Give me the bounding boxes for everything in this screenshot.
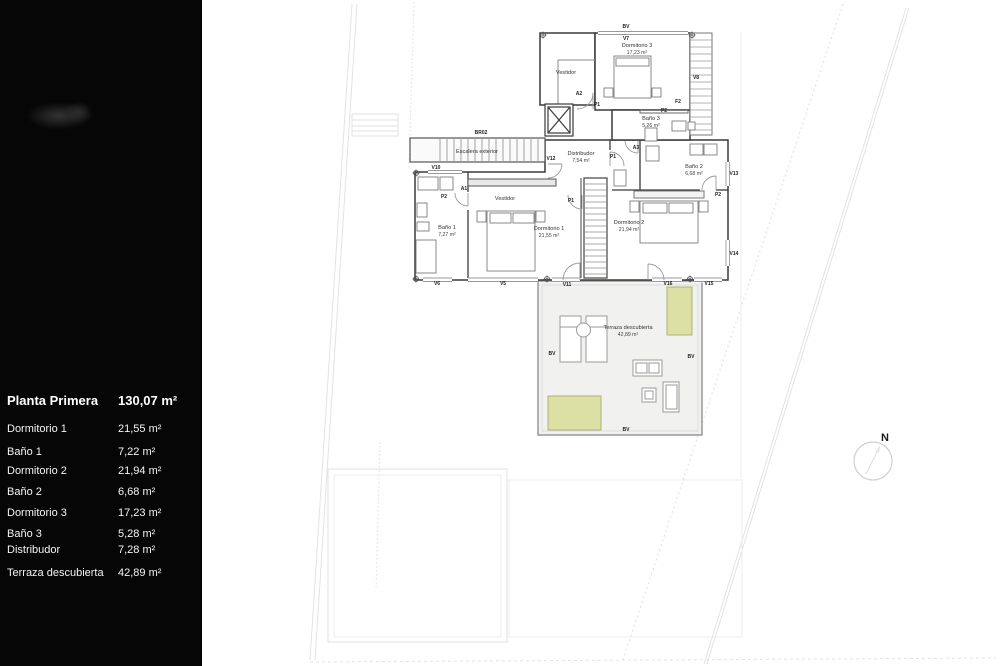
tag-label: P2 [715, 192, 721, 198]
room-name: Distribudor [7, 544, 60, 556]
tag-label: V7 [623, 36, 629, 42]
area-row: Dormitorio 2 21,94 m² [7, 465, 196, 478]
tag-label: BV [688, 354, 696, 360]
room-area: 21,55 m² [118, 423, 161, 436]
room-label-dormitorio-2: Dormitorio 2 [614, 220, 644, 226]
plan-title-row: Planta Primera 130,07 m² [7, 393, 196, 408]
room-label-vestidor-3: Vestidor [556, 70, 576, 76]
tag-label: V10 [432, 165, 441, 171]
tag-label: BV [623, 24, 631, 30]
area-row: Dormitorio 3 17,23 m² [7, 507, 196, 520]
tag-label: V12 [547, 156, 556, 162]
room-area: 17,23 m² [118, 507, 161, 520]
tag-label: BV [623, 427, 631, 433]
room-label-bano-2: Baño 2 [685, 164, 703, 170]
room-area-dormitorio-3: 17,23 m² [627, 50, 648, 56]
interior-stair [581, 178, 607, 278]
room-area-bano-3: 5,26 m² [642, 123, 660, 129]
room-area: 5,28 m² [118, 528, 155, 541]
room-name: Dormitorio 2 [7, 465, 67, 477]
area-row: Baño 1 7,22 m² [7, 446, 196, 459]
room-area-dormitorio-1: 21,55 m² [539, 233, 560, 239]
room-name: Terraza descubierta [7, 567, 104, 579]
tag-label: A3 [633, 145, 640, 151]
room-name: Baño 1 [7, 446, 42, 458]
terrace [538, 281, 702, 435]
tag-label: V5 [500, 281, 506, 287]
wardrobe-band [468, 179, 556, 186]
tag-label: BR02 [475, 130, 488, 136]
wardrobe-band [634, 191, 704, 198]
room-name: Baño 3 [7, 528, 42, 540]
room-area: 7,28 m² [118, 544, 155, 557]
area-row: Terraza descubierta 42,89 m² [7, 567, 196, 580]
tag-label: V16 [664, 281, 673, 287]
room-label-dormitorio-3: Dormitorio 3 [622, 43, 652, 49]
room-name: Baño 2 [7, 486, 42, 498]
room-area-dormitorio-2: 21,94 m² [619, 227, 640, 233]
sidebar: Planta Primera 130,07 m² Dormitorio 1 21… [0, 0, 202, 666]
page-title: Planta Primera [7, 393, 98, 408]
total-area-value: 130,07 m² [118, 393, 177, 408]
tag-label: V15 [705, 281, 714, 287]
room-area-terraza: 42,89 m² [618, 332, 639, 338]
planter [548, 396, 601, 430]
tag-label: V11 [563, 282, 572, 288]
room-area-distribudor: 7,54 m² [572, 158, 590, 164]
tag-label: BV [549, 351, 557, 357]
tag-label: V13 [730, 171, 739, 177]
room-label-vestidor-1: Vestidor [495, 196, 515, 202]
logo-mark [24, 96, 102, 132]
tag-label: V8 [693, 75, 699, 81]
room-area: 6,68 m² [118, 486, 155, 499]
north-label: N [881, 432, 889, 444]
room-name: Dormitorio 1 [7, 423, 67, 435]
tag-label: P1 [594, 102, 600, 108]
compass: N [854, 432, 892, 480]
page: { "sidebar": { "title": {"label": "Plant… [0, 0, 1000, 666]
tag-label: F2 [675, 99, 681, 105]
planter [667, 287, 692, 335]
site-steps [352, 114, 398, 136]
room-label-bano-3: Baño 3 [642, 116, 660, 122]
room-name: Dormitorio 3 [7, 507, 67, 519]
room-label-dormitorio-1: Dormitorio 1 [534, 226, 564, 232]
tag-label: P2 [441, 194, 447, 200]
room-area: 7,22 m² [118, 446, 155, 459]
tag-label: A1 [461, 186, 468, 192]
room-label-distribudor: Distribudor [567, 151, 594, 157]
room-label-escalera: Escalera exterior [456, 149, 498, 155]
area-row: Baño 2 6,68 m² [7, 486, 196, 499]
room-area: 42,89 m² [118, 567, 161, 580]
tag-label: P1 [610, 154, 616, 160]
room-label-terraza: Terraza descubierta [603, 325, 653, 331]
area-row: Dormitorio 1 21,55 m² [7, 423, 196, 436]
room-area-bano-2: 6,68 m² [685, 171, 703, 177]
tag-label: V6 [434, 281, 440, 287]
elevator-shaft [545, 104, 573, 136]
area-row: Baño 3 5,28 m² [7, 528, 196, 541]
tag-label: P1 [568, 198, 574, 204]
tag-label: P2 [661, 108, 667, 114]
room-label-bano-1: Baño 1 [438, 225, 456, 231]
louvre-strip [690, 33, 712, 135]
room-area: 21,94 m² [118, 465, 161, 478]
tag-label: A2 [576, 91, 583, 97]
room-area-bano-1: 7,27 m² [438, 232, 456, 238]
tag-label: V14 [730, 251, 739, 257]
area-row: Distribudor 7,28 m² [7, 544, 196, 557]
